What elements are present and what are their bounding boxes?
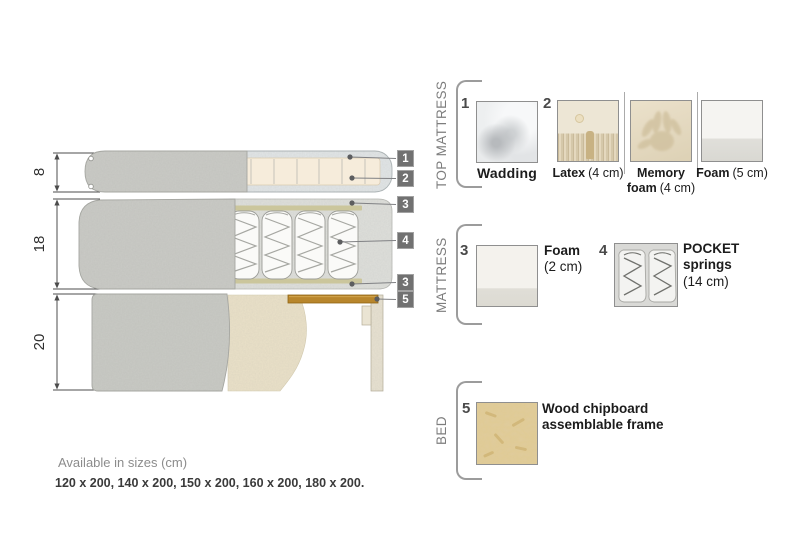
pocket-springs-label: POCKET springs (14 cm) bbox=[683, 241, 765, 290]
wood-chipboard-name: Wood chipboard assemblable frame bbox=[542, 401, 664, 432]
callout-box-1: 1 bbox=[397, 150, 414, 167]
latex-size: (4 cm) bbox=[588, 166, 623, 180]
foam-2cm-swatch bbox=[476, 245, 538, 307]
callout-box-4: 4 bbox=[397, 232, 414, 249]
foam-5cm-size: (5 cm) bbox=[732, 166, 767, 180]
bed-section bbox=[92, 294, 383, 391]
bed-group-title: BED bbox=[434, 382, 452, 480]
callout-box-5: 5 bbox=[397, 291, 414, 308]
wadding-name: Wadding bbox=[477, 165, 537, 181]
mattress-group-title: MATTRESS bbox=[434, 225, 452, 325]
bed-fabric-cover bbox=[92, 294, 230, 391]
pocket-springs-name: POCKET springs bbox=[683, 241, 739, 272]
legend-number-1: 1 bbox=[461, 95, 469, 112]
foam-5cm-label: Foam(5 cm) bbox=[684, 166, 780, 181]
sizes-list: 120 x 200, 140 x 200, 150 x 200, 160 x 2… bbox=[55, 476, 364, 490]
callout-box-3-top: 3 bbox=[397, 196, 414, 213]
callout-box-2: 2 bbox=[397, 170, 414, 187]
memory-foam-size: (4 cm) bbox=[660, 181, 695, 195]
wood-chipboard-graphic bbox=[477, 403, 538, 465]
latex-name: Latex bbox=[552, 166, 585, 180]
dimension-mattress-height: 18 bbox=[31, 236, 48, 253]
bed-frame-bracket bbox=[362, 306, 371, 325]
legend-divider-1 bbox=[624, 92, 625, 174]
handprint-graphic bbox=[631, 101, 692, 162]
wadding-swatch bbox=[476, 101, 538, 163]
legend-number-4: 4 bbox=[599, 242, 607, 259]
bed-cross-section-diagram: 8 18 20 bbox=[0, 0, 430, 420]
top-mattress-fabric-cover bbox=[85, 151, 247, 192]
memory-foam-swatch bbox=[630, 100, 692, 162]
legend-number-2: 2 bbox=[543, 95, 551, 112]
sizes-title: Available in sizes (cm) bbox=[58, 455, 187, 470]
top-mattress-section bbox=[85, 151, 392, 192]
dimension-top-mattress-height: 8 bbox=[31, 168, 48, 176]
callout-box-3-bottom: 3 bbox=[397, 274, 414, 291]
tuft-button-bottom bbox=[89, 184, 94, 189]
wood-chipboard-label: Wood chipboard assemblable frame bbox=[542, 401, 684, 434]
pocket-springs-size: (14 cm) bbox=[683, 274, 765, 290]
foam-2cm-name: Foam bbox=[544, 243, 580, 258]
legend-divider-2 bbox=[697, 92, 698, 174]
foam-5cm-swatch bbox=[701, 100, 763, 162]
foam-5cm-name: Foam bbox=[696, 166, 729, 180]
top-mattress-group-title: TOP MATTRESS bbox=[434, 80, 452, 190]
mattress-section bbox=[79, 199, 392, 289]
pocket-springs-swatch bbox=[614, 243, 678, 307]
pocket-springs-graphic bbox=[615, 244, 678, 307]
dimension-bed-height: 20 bbox=[31, 334, 48, 351]
mattress-foam-layer-top bbox=[228, 206, 362, 211]
top-foam-blocks bbox=[230, 158, 380, 185]
mattress-infographic: 8 18 20 bbox=[0, 0, 800, 533]
latex-drip bbox=[575, 114, 584, 123]
foam-2cm-size: (2 cm) bbox=[544, 259, 614, 275]
bed-frame-side-post bbox=[371, 295, 383, 391]
mattress-fabric-cover bbox=[79, 199, 235, 289]
wood-chipboard-swatch bbox=[476, 402, 538, 465]
tuft-button-top bbox=[89, 156, 94, 161]
legend-number-3: 3 bbox=[460, 242, 468, 259]
legend-number-5: 5 bbox=[462, 400, 470, 417]
bed-fabric-drape bbox=[228, 295, 306, 391]
latex-tassel bbox=[586, 131, 594, 159]
latex-swatch bbox=[557, 100, 619, 162]
